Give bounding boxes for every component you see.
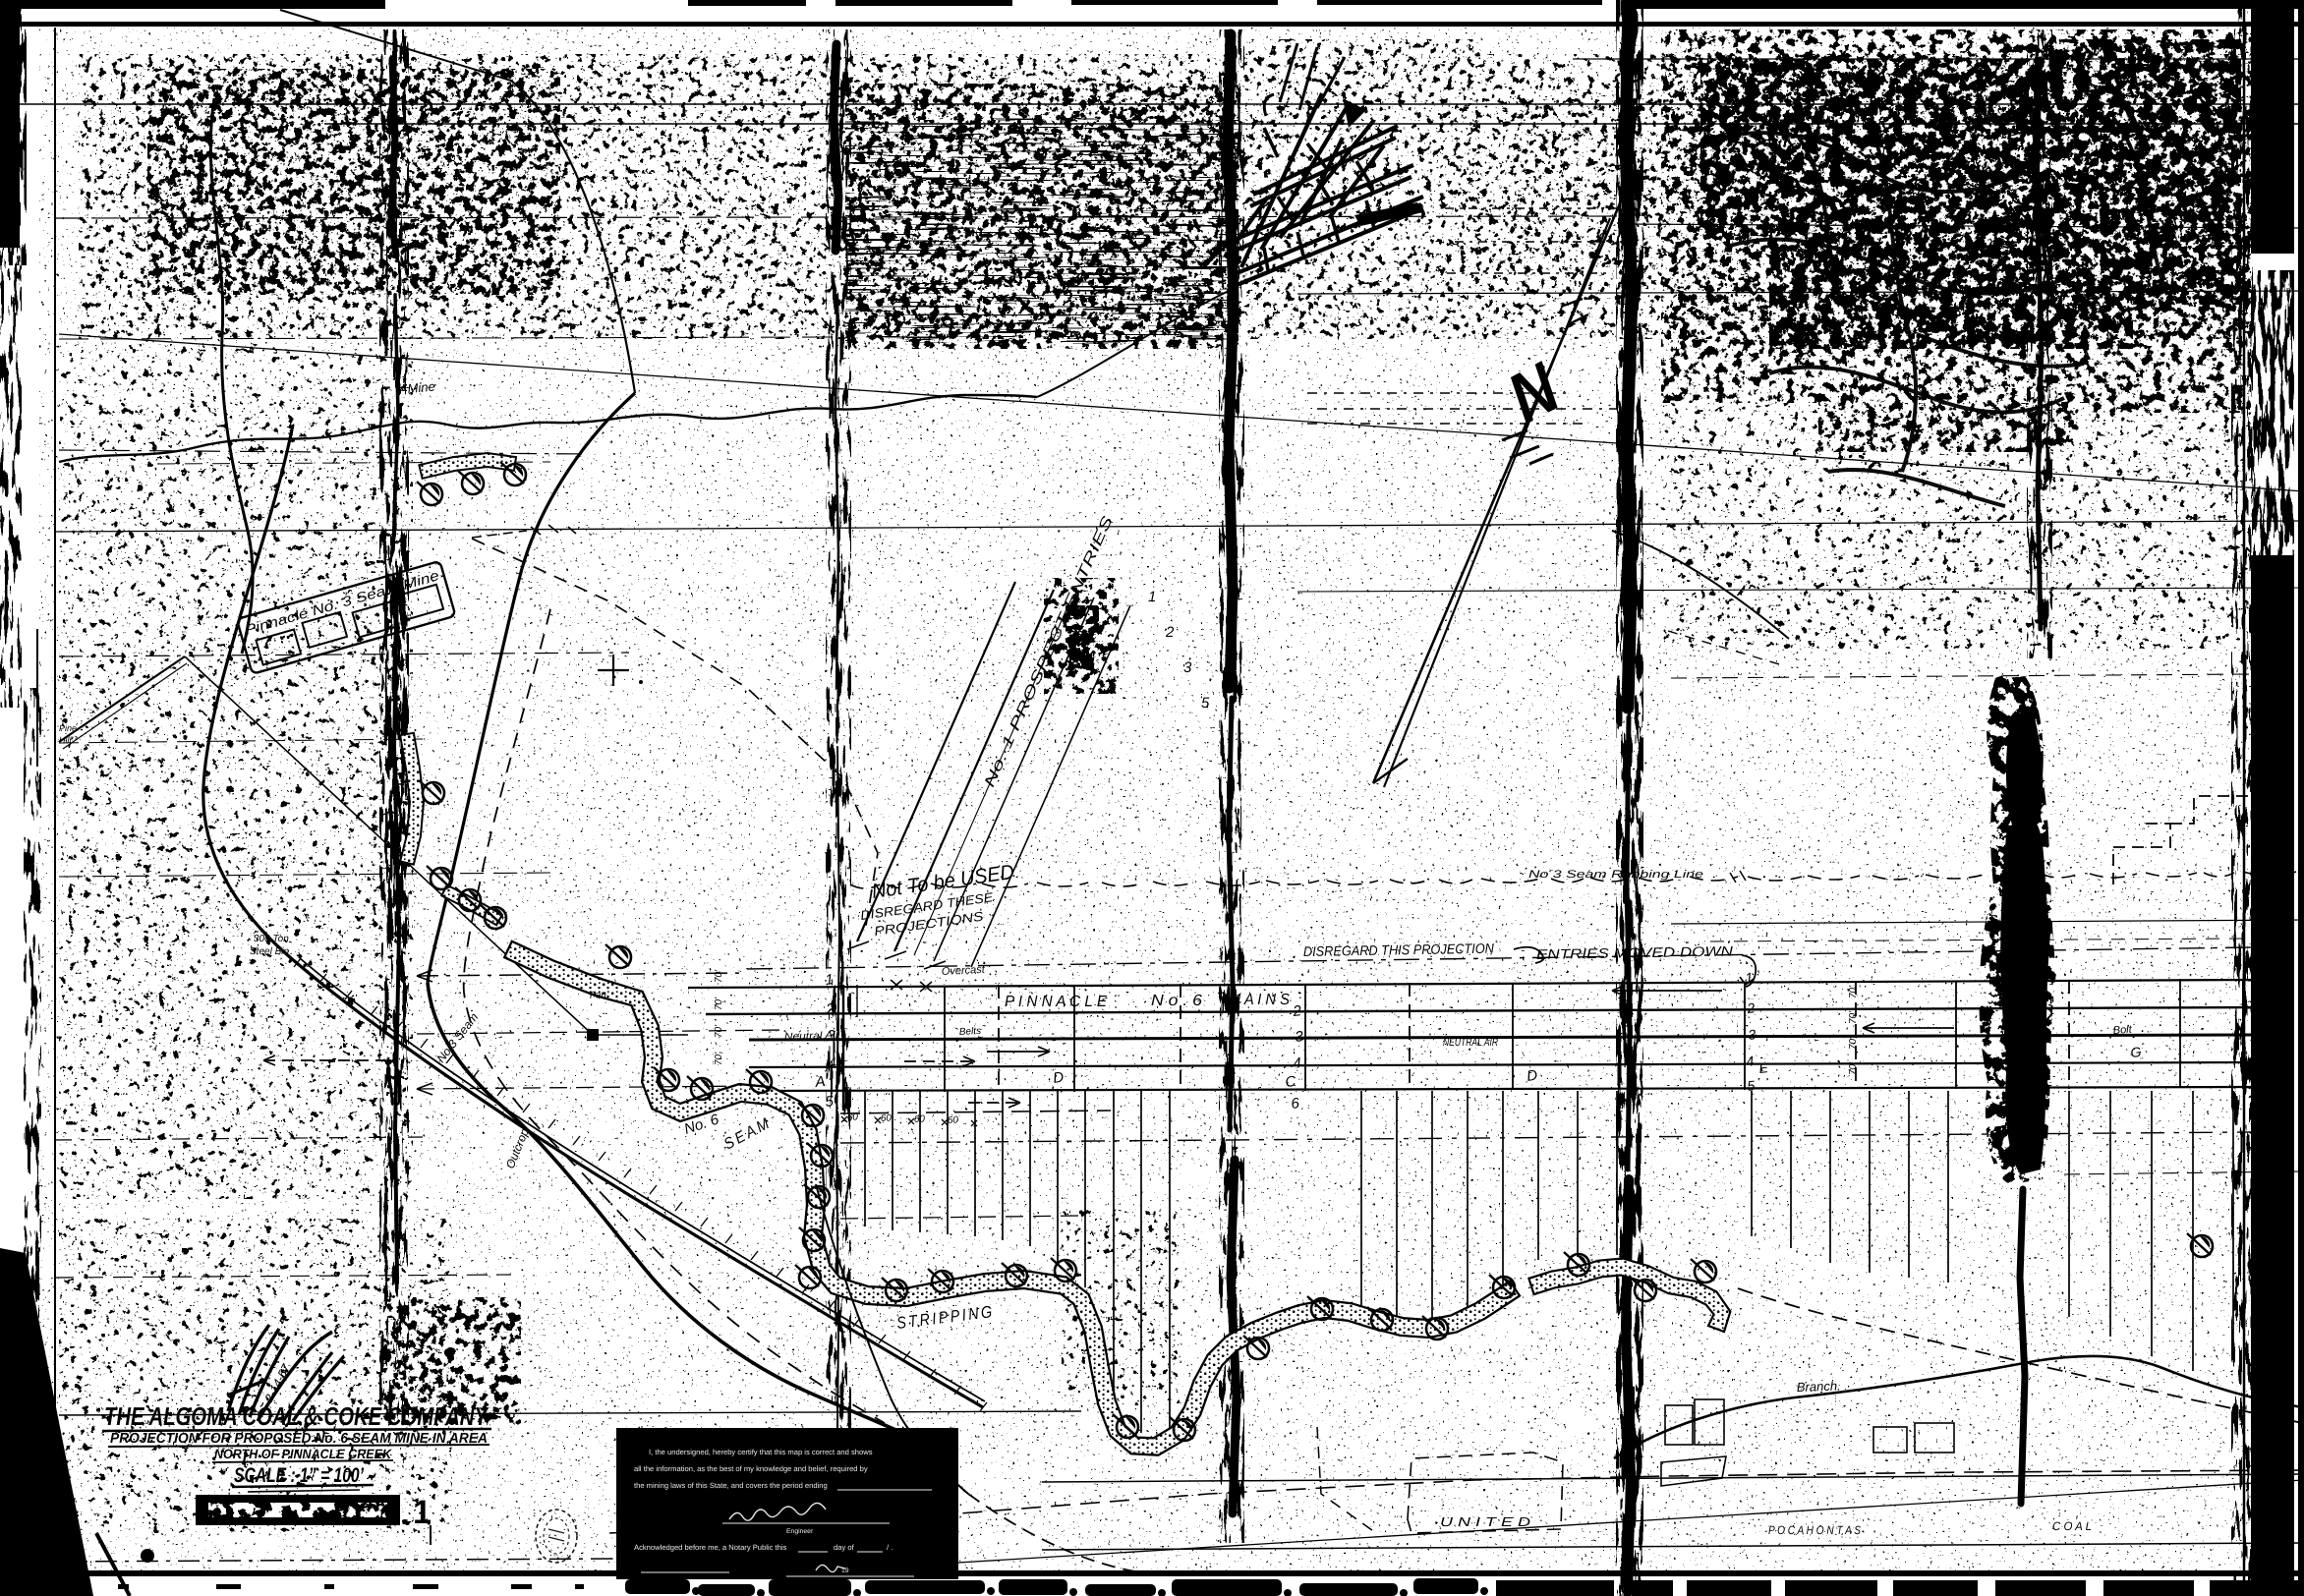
svg-text:1: 1 [825,971,835,989]
svg-text:70': 70' [1848,1061,1859,1075]
svg-text:60: 60 [847,1111,859,1123]
svg-text:M A I N S: M A I N S [1229,992,1290,1008]
svg-text:C O A L: C O A L [2052,1519,2092,1533]
svg-text:Bolt: Bolt [2112,1024,2133,1037]
svg-text:Mine: Mine [407,379,435,396]
svg-text:G: G [2130,1044,2143,1060]
svg-text:70': 70' [714,969,724,983]
svg-text:the mining laws of this State,: the mining laws of this State, and cover… [634,1481,828,1490]
svg-text:Fan: Fan [589,989,607,1000]
svg-text:3: 3 [1183,659,1192,676]
svg-text:C O.: C O. [2261,1525,2284,1537]
svg-text:Engineer: Engineer [786,1528,814,1535]
svg-text:DISREGARD THIS PROJECTION: DISREGARD THIS PROJECTION [1303,940,1495,959]
svg-text:C: C [1285,1073,1297,1091]
svg-text:60: 60 [881,1112,893,1124]
svg-text:U N I T E D: U N I T E D [1440,1514,1530,1529]
svg-text:70': 70' [714,1024,724,1038]
svg-text:Overcast: Overcast [942,964,987,978]
svg-text:70': 70' [714,997,724,1010]
svg-text:70': 70' [714,1052,724,1065]
svg-text:N o . 6: N o . 6 [1151,993,1202,1009]
svg-text:all the information, as the be: all the information, as the best of my k… [634,1464,868,1473]
svg-text:1: 1 [1745,969,1754,986]
svg-text:70': 70' [1848,1010,1859,1024]
svg-text:A: A [814,1073,827,1091]
svg-text:4: 4 [1293,1054,1302,1072]
svg-text:5: 5 [1201,695,1210,712]
svg-text:1: 1 [413,1494,432,1531]
svg-text:70': 70' [1848,1036,1859,1050]
svg-text:19: 19 [841,1567,849,1574]
svg-text:Branch.: Branch. [1797,1378,1841,1395]
svg-text:NORTH OF PINNACLE CREEK: NORTH OF PINNACLE CREEK [214,1447,392,1461]
svg-text:Pine: Pine [59,723,77,733]
svg-text:300 Ton: 300 Ton [254,934,289,944]
svg-text:60: 60 [948,1114,959,1126]
svg-text:P I N N A C L E: P I N N A C L E [1005,994,1107,1010]
svg-text:70': 70' [1848,985,1859,998]
svg-text:1: 1 [1148,589,1156,605]
svg-text:Belts: Belts [959,1026,982,1038]
svg-text:P O C A H O N T A S: P O C A H O N T A S [1768,1523,1861,1537]
svg-text:Steel Bin: Steel Bin [250,946,289,957]
svg-text:4: 4 [828,1054,837,1072]
svg-text:day of: day of [834,1543,855,1552]
svg-text:I, the undersigned, hereby cer: I, the undersigned, hereby certify that … [649,1448,873,1456]
svg-text:SCALE : 1” = 100’: SCALE : 1” = 100’ [234,1464,365,1487]
svg-text:Acknowledged before me, a Nota: Acknowledged before me, a Notary Public … [634,1543,787,1552]
svg-text:2: 2 [1165,624,1175,641]
svg-text:60: 60 [914,1113,926,1125]
svg-text:No 3 Seam Robbing Line: No 3 Seam Robbing Line [1528,869,1703,881]
svg-text:/ .: / . [887,1543,893,1552]
svg-text:Hill: Hill [59,735,72,745]
svg-text:NEUTRAL AIR: NEUTRAL AIR [1443,1037,1498,1049]
